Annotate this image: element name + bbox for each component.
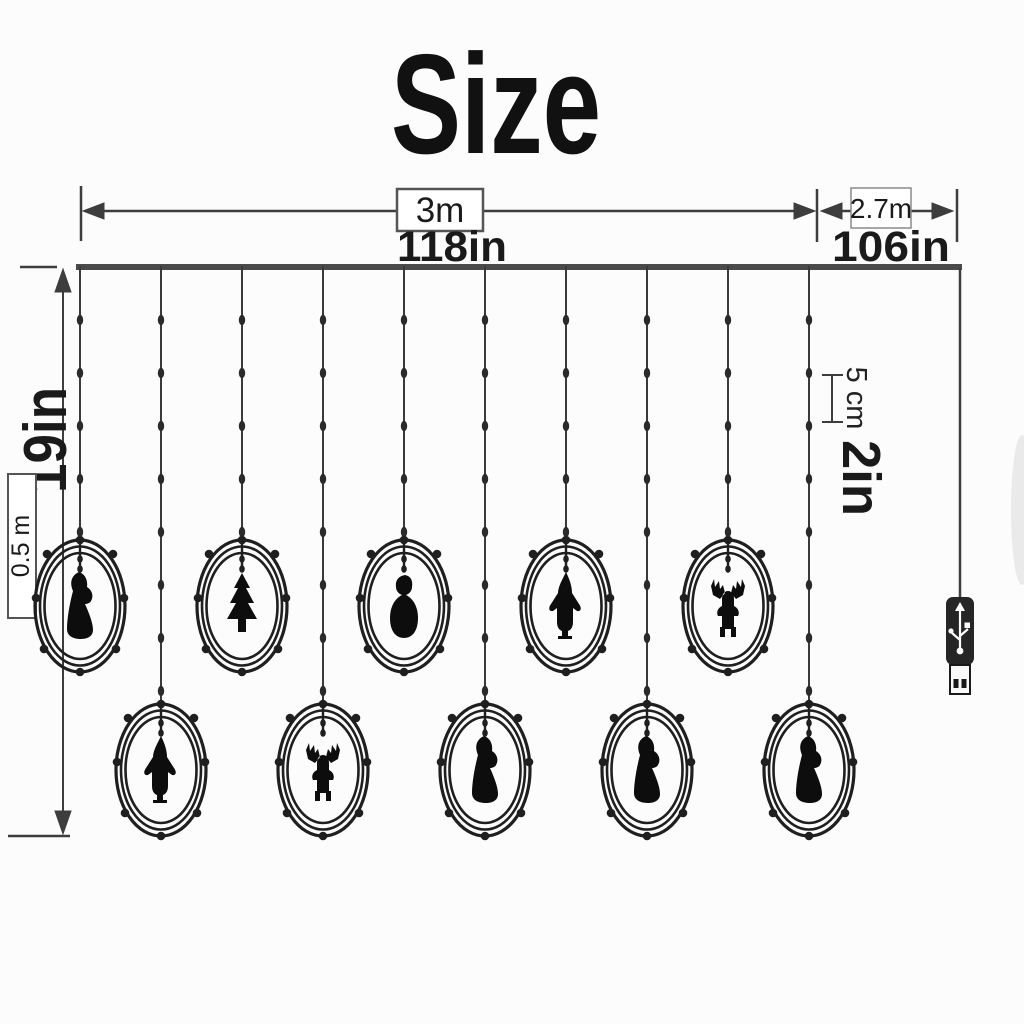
led-dot bbox=[806, 633, 812, 643]
ring-led-dot bbox=[691, 550, 700, 559]
led-dot bbox=[806, 421, 812, 431]
main-width-imperial-label: 118in bbox=[397, 223, 507, 271]
ring-led-dot bbox=[599, 758, 608, 767]
ring-led-dot bbox=[355, 809, 364, 818]
led-spacing-imperial-label: 2in bbox=[831, 440, 891, 516]
chain-bead bbox=[644, 729, 650, 737]
ring-led-dot bbox=[271, 550, 280, 559]
ring-led-dot bbox=[275, 758, 284, 767]
ring-led-dot bbox=[514, 714, 523, 723]
ring-led-dot bbox=[120, 594, 129, 603]
ring-led-dot bbox=[194, 594, 203, 603]
ring-led-dot bbox=[121, 809, 130, 818]
led-dot bbox=[644, 474, 650, 484]
ring-led-dot bbox=[805, 832, 814, 841]
ring-led-dot bbox=[367, 550, 376, 559]
ring-led-dot bbox=[113, 758, 122, 767]
chain-bead bbox=[482, 729, 488, 737]
ring-led-dot bbox=[193, 809, 202, 818]
led-dot bbox=[77, 421, 83, 431]
chain-bead bbox=[563, 555, 569, 563]
led-dot bbox=[644, 580, 650, 590]
ring-led-dot bbox=[364, 645, 373, 654]
led-dot bbox=[239, 421, 245, 431]
ring-led-dot bbox=[448, 714, 457, 723]
ring-led-dot bbox=[400, 668, 409, 677]
led-dot bbox=[77, 474, 83, 484]
ring-led-dot bbox=[481, 832, 490, 841]
ring-led-dot bbox=[445, 809, 454, 818]
ring-led-dot bbox=[109, 550, 118, 559]
ring-led-dot bbox=[680, 594, 689, 603]
led-dot bbox=[482, 315, 488, 325]
size-diagram: Size 3m 118in 2.7m 106in 19in 0.5 m 5 cm… bbox=[0, 0, 1024, 1024]
ring-led-dot bbox=[525, 758, 534, 767]
led-dot bbox=[806, 474, 812, 484]
led-dot bbox=[158, 368, 164, 378]
ring-led-dot bbox=[761, 758, 770, 767]
ring-led-dot bbox=[688, 645, 697, 654]
led-dot bbox=[644, 315, 650, 325]
ring-led-dot bbox=[363, 758, 372, 767]
led-dot bbox=[644, 368, 650, 378]
led-dot bbox=[806, 580, 812, 590]
led-dot bbox=[482, 368, 488, 378]
ring-led-dot bbox=[274, 645, 283, 654]
chain-bead bbox=[158, 719, 164, 727]
usb-pin bbox=[962, 679, 967, 688]
led-dot bbox=[320, 315, 326, 325]
led-dot bbox=[320, 421, 326, 431]
ring-led-dot bbox=[643, 832, 652, 841]
led-dot bbox=[320, 368, 326, 378]
led-dot bbox=[725, 527, 731, 537]
led-dot bbox=[158, 686, 164, 696]
ring-led-dot bbox=[433, 550, 442, 559]
led-dot bbox=[239, 368, 245, 378]
ring-led-dot bbox=[202, 645, 211, 654]
ring-led-dot bbox=[286, 714, 295, 723]
ring-led-dot bbox=[610, 714, 619, 723]
ring-led-dot bbox=[724, 668, 733, 677]
chain-bead bbox=[239, 555, 245, 563]
ring-led-dot bbox=[772, 714, 781, 723]
led-dot bbox=[644, 421, 650, 431]
led-dot bbox=[563, 421, 569, 431]
led-dot bbox=[320, 580, 326, 590]
led-dot bbox=[563, 368, 569, 378]
led-dot bbox=[401, 368, 407, 378]
ring-led-dot bbox=[43, 550, 52, 559]
led-dot bbox=[77, 368, 83, 378]
ring-led-dot bbox=[157, 832, 166, 841]
ring-led-dot bbox=[595, 550, 604, 559]
led-dot bbox=[806, 315, 812, 325]
ring-led-dot bbox=[687, 758, 696, 767]
ring-led-dot bbox=[607, 809, 616, 818]
chain-bead bbox=[158, 729, 164, 737]
led-dot bbox=[158, 474, 164, 484]
ring-led-dot bbox=[526, 645, 535, 654]
led-dot bbox=[239, 527, 245, 537]
ring-led-dot bbox=[444, 594, 453, 603]
led-dot bbox=[320, 686, 326, 696]
lead-width-metric-label: 2.7m bbox=[850, 193, 912, 224]
ring-led-dot bbox=[679, 809, 688, 818]
ring-led-dot bbox=[40, 645, 49, 654]
led-dot bbox=[806, 527, 812, 537]
chain-bead bbox=[401, 565, 407, 573]
chain-bead bbox=[725, 565, 731, 573]
led-dot bbox=[320, 527, 326, 537]
ring-led-dot bbox=[517, 809, 526, 818]
ring-led-dot bbox=[838, 714, 847, 723]
ring-led-dot bbox=[352, 714, 361, 723]
ring-led-dot bbox=[562, 668, 571, 677]
chain-bead bbox=[77, 565, 83, 573]
led-dot bbox=[77, 527, 83, 537]
ring-led-dot bbox=[356, 594, 365, 603]
led-dot bbox=[401, 527, 407, 537]
ring-led-dot bbox=[606, 594, 615, 603]
led-dot bbox=[563, 527, 569, 537]
led-dot bbox=[563, 474, 569, 484]
led-dot bbox=[401, 421, 407, 431]
led-dot bbox=[725, 315, 731, 325]
led-dot bbox=[401, 315, 407, 325]
ring-led-dot bbox=[76, 668, 85, 677]
led-dot bbox=[320, 474, 326, 484]
chain-bead bbox=[320, 719, 326, 727]
chain-bead bbox=[239, 565, 245, 573]
led-dot bbox=[320, 633, 326, 643]
led-spacing-metric-label: 5 cm bbox=[840, 367, 872, 430]
led-dot bbox=[482, 686, 488, 696]
ring-led-dot bbox=[436, 645, 445, 654]
size-title: Size bbox=[391, 25, 601, 184]
chain-bead bbox=[401, 555, 407, 563]
ring-led-dot bbox=[598, 645, 607, 654]
led-dot bbox=[806, 368, 812, 378]
ring-led-dot bbox=[190, 714, 199, 723]
led-dot bbox=[806, 686, 812, 696]
led-dot bbox=[158, 633, 164, 643]
ring-led-dot bbox=[757, 550, 766, 559]
led-dot bbox=[482, 421, 488, 431]
chain-bead bbox=[806, 729, 812, 737]
led-dot bbox=[239, 315, 245, 325]
chain-bead bbox=[482, 719, 488, 727]
led-dot bbox=[401, 474, 407, 484]
led-dot bbox=[77, 315, 83, 325]
led-dot bbox=[482, 580, 488, 590]
ring-led-dot bbox=[760, 645, 769, 654]
diagram-canvas: Size 3m 118in 2.7m 106in 19in 0.5 m 5 cm… bbox=[0, 0, 1024, 1024]
ring-led-dot bbox=[841, 809, 850, 818]
led-dot bbox=[239, 474, 245, 484]
led-dot bbox=[725, 368, 731, 378]
chain-bead bbox=[320, 729, 326, 737]
led-dot bbox=[725, 474, 731, 484]
led-dot bbox=[644, 527, 650, 537]
ring-led-dot bbox=[282, 594, 291, 603]
led-dot bbox=[563, 315, 569, 325]
ring-led-dot bbox=[124, 714, 133, 723]
led-dot bbox=[158, 421, 164, 431]
led-dot bbox=[482, 633, 488, 643]
led-dot bbox=[644, 633, 650, 643]
chain-bead bbox=[806, 719, 812, 727]
led-dot bbox=[725, 421, 731, 431]
led-dot bbox=[158, 580, 164, 590]
led-dot bbox=[158, 315, 164, 325]
ring-led-dot bbox=[238, 668, 247, 677]
chain-bead bbox=[725, 555, 731, 563]
ring-led-dot bbox=[768, 594, 777, 603]
ring-led-dot bbox=[769, 809, 778, 818]
chain-bead bbox=[644, 719, 650, 727]
drop-height-metric-label: 0.5 m bbox=[7, 515, 35, 578]
chain-bead bbox=[563, 565, 569, 573]
ring-led-dot bbox=[529, 550, 538, 559]
ring-led-dot bbox=[319, 832, 328, 841]
ring-led-dot bbox=[201, 758, 210, 767]
led-dot bbox=[644, 686, 650, 696]
usb-pin bbox=[954, 679, 959, 688]
ring-led-dot bbox=[676, 714, 685, 723]
ring-led-dot bbox=[283, 809, 292, 818]
led-dot bbox=[158, 527, 164, 537]
led-dot bbox=[482, 474, 488, 484]
chain-bead bbox=[77, 555, 83, 563]
ring-led-dot bbox=[849, 758, 858, 767]
lead-width-imperial-label: 106in bbox=[832, 223, 950, 271]
ring-led-dot bbox=[518, 594, 527, 603]
led-dot bbox=[482, 527, 488, 537]
ring-led-dot bbox=[112, 645, 121, 654]
usb-plug bbox=[950, 665, 970, 694]
ring-led-dot bbox=[437, 758, 446, 767]
curtain-bar bbox=[76, 264, 962, 270]
ring-led-dot bbox=[205, 550, 214, 559]
ring-led-dot bbox=[32, 594, 41, 603]
